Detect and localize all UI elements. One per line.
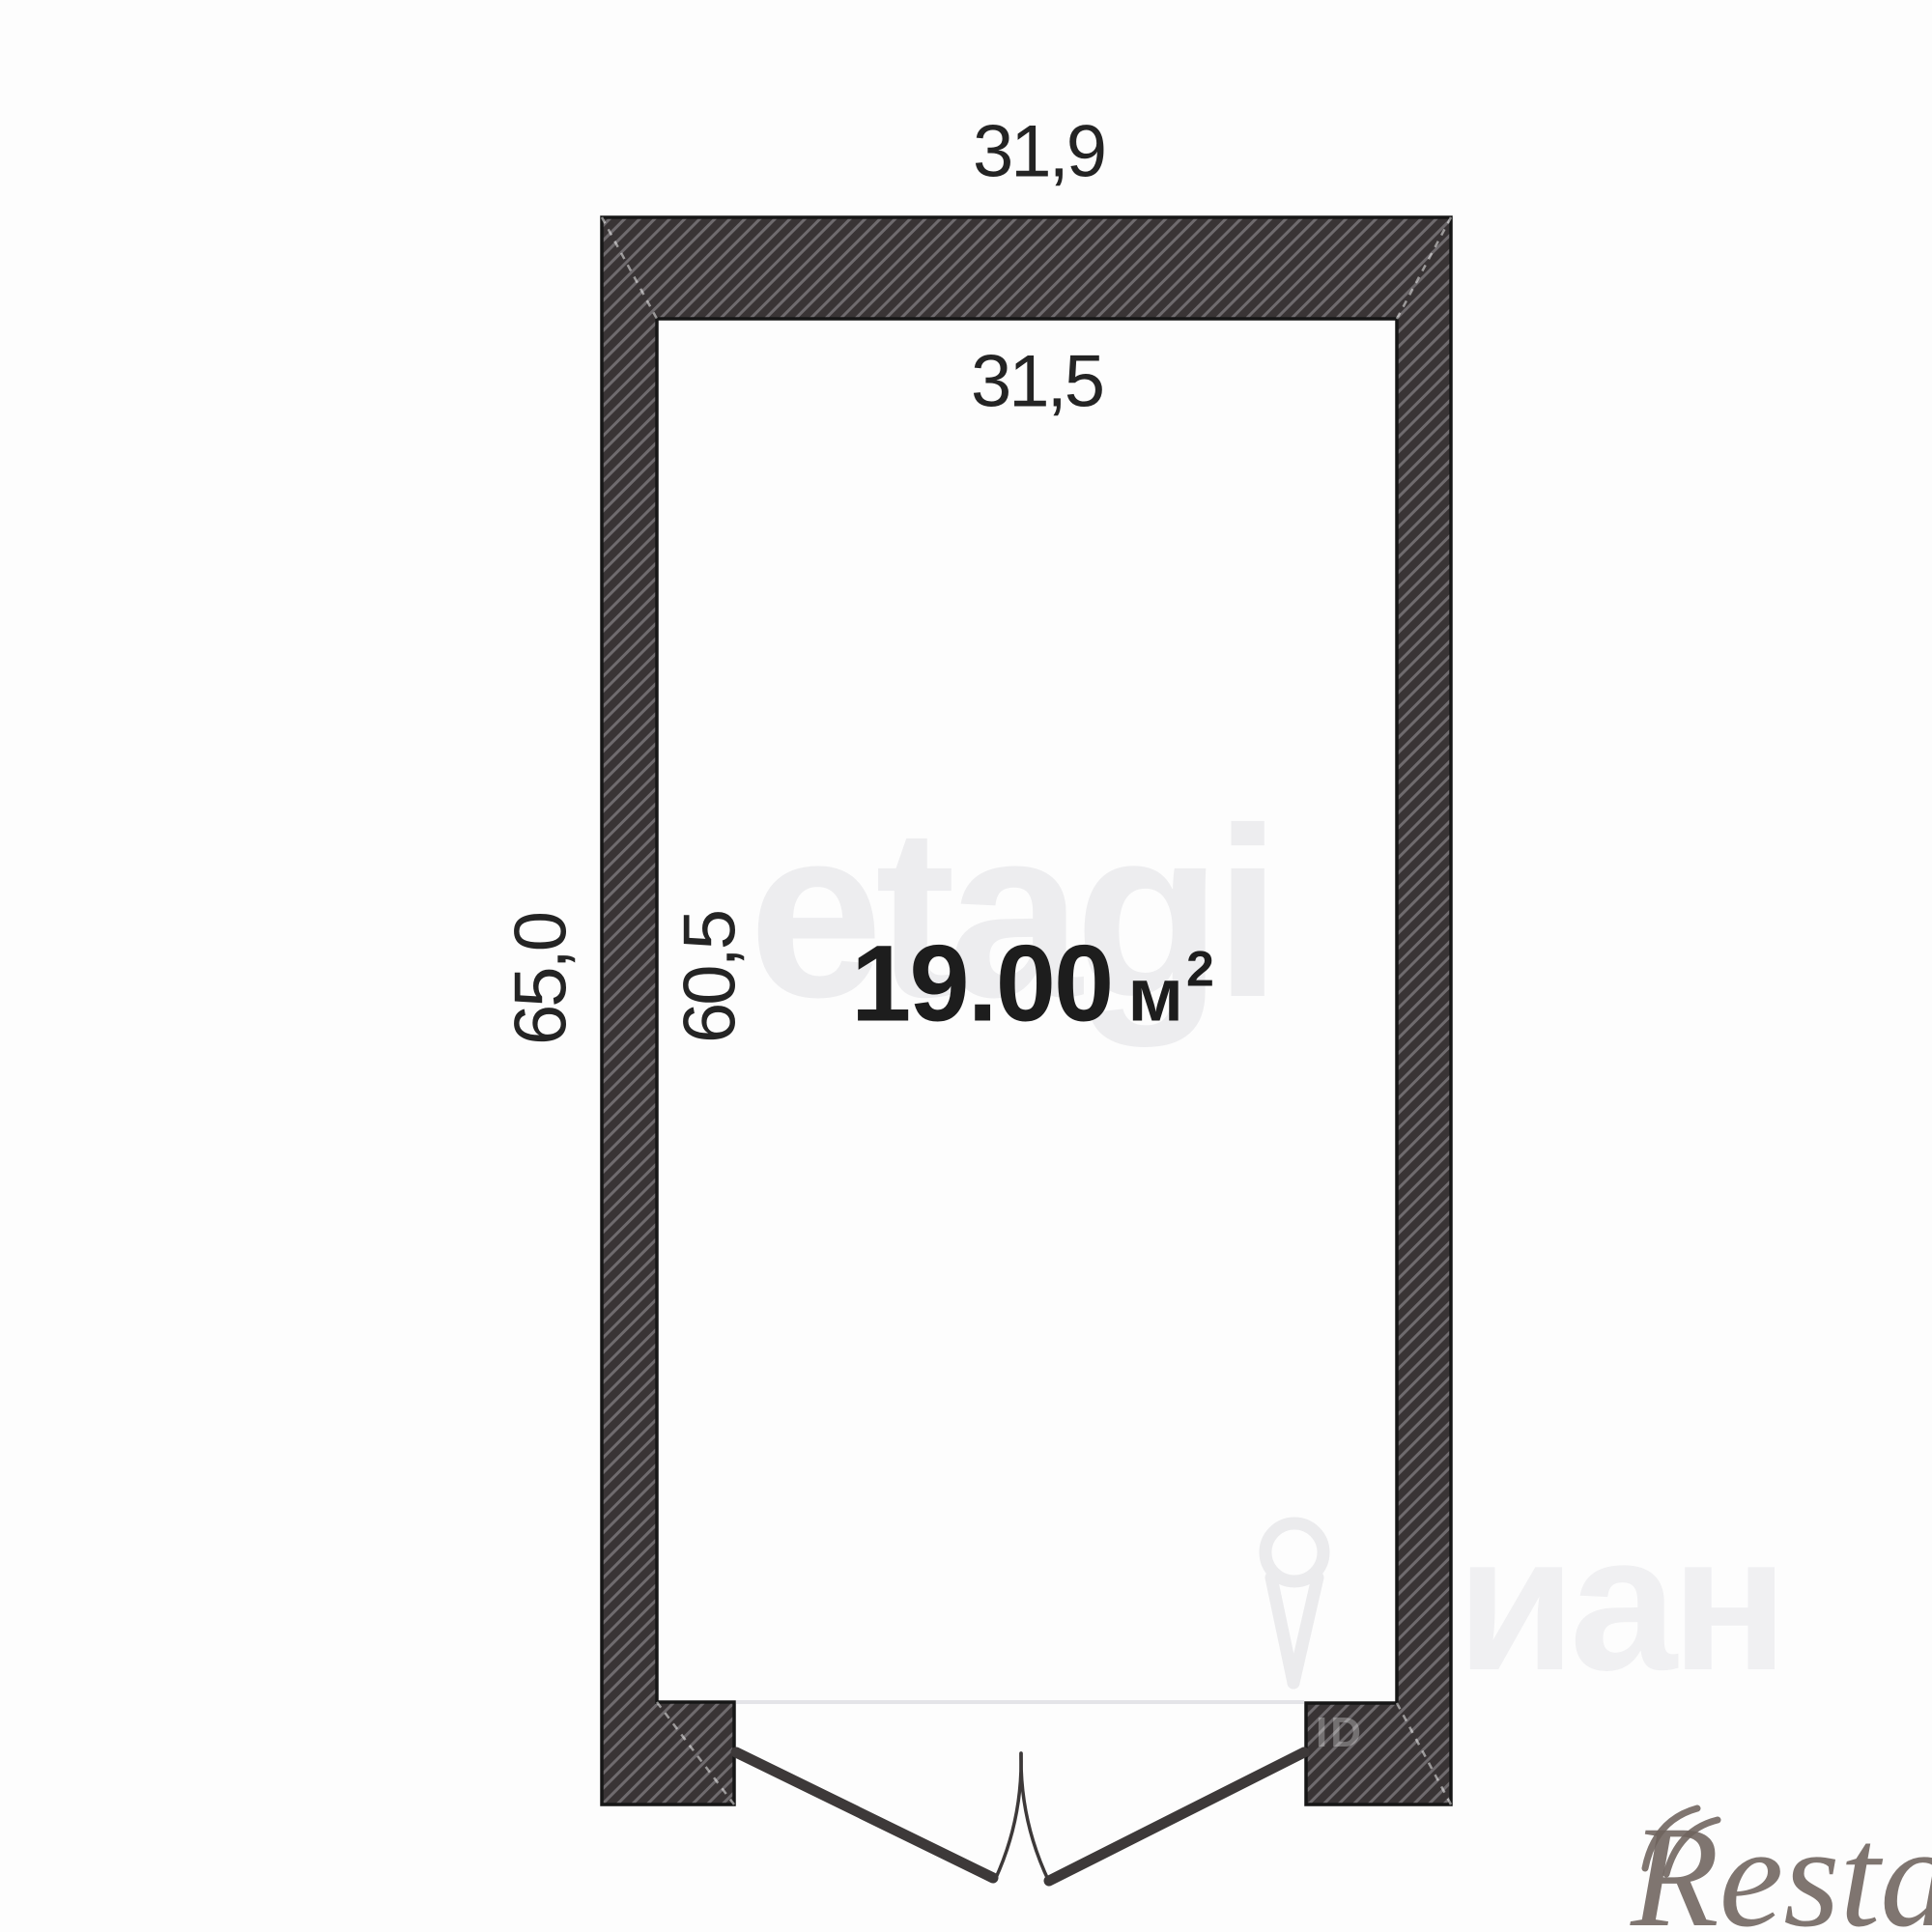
- dimension-left-inner: 60,5: [668, 912, 753, 1043]
- area-unit: м: [1127, 952, 1181, 1039]
- cian-id-watermark: ID: [1316, 1712, 1364, 1754]
- area-label: 19.00 м 2: [851, 922, 1212, 1046]
- floor-plan-canvas: etagi иан: [0, 0, 1932, 1932]
- label-layer: 31,9 31,5 65,0 60,5 19.00 м 2 ID Restate: [0, 0, 1932, 1932]
- restate-watermark: Restate: [1631, 1804, 1932, 1932]
- dimension-top-outer: 31,9: [973, 110, 1104, 194]
- dimension-top-inner: 31,5: [971, 340, 1102, 424]
- dimension-left-outer: 65,0: [499, 914, 583, 1045]
- area-unit-superscript: 2: [1186, 941, 1212, 999]
- area-value: 19.00: [851, 922, 1112, 1046]
